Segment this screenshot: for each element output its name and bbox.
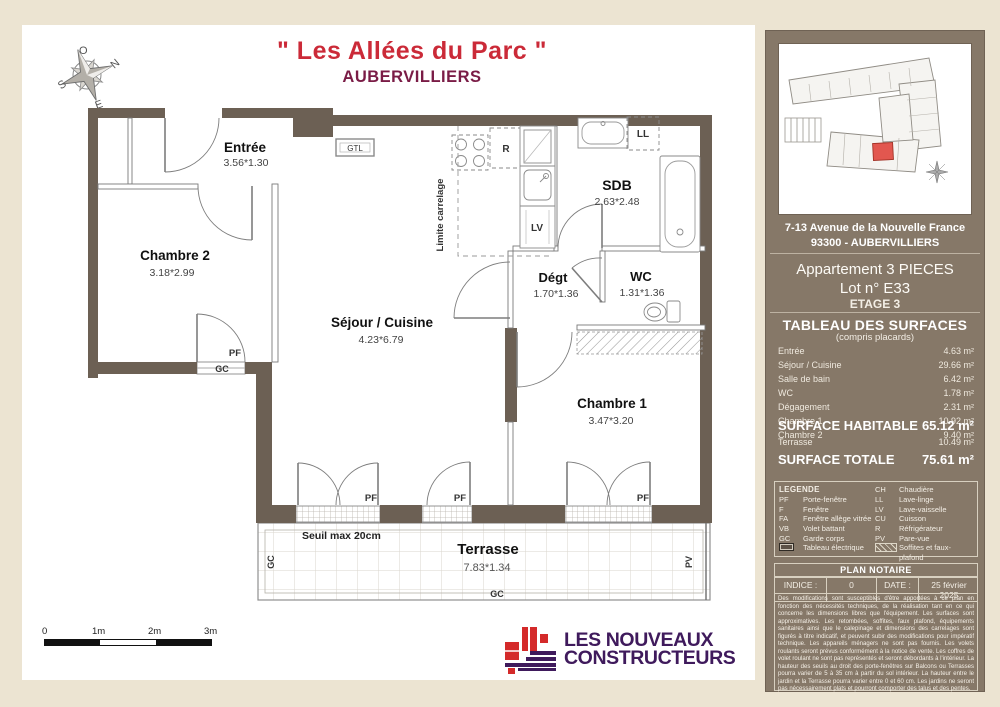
room-wc: WC xyxy=(630,269,652,284)
dishwasher-label: LV xyxy=(531,223,543,234)
pf-label-1: PF xyxy=(365,493,377,504)
room-chambre2-dims: 3.18*2.99 xyxy=(150,267,195,279)
gtl-label: GTL xyxy=(347,144,363,153)
room-wc-dims: 1.31*1.36 xyxy=(620,287,665,299)
scale-0: 0 xyxy=(42,626,47,637)
room-sdb-dims: 2.63*2.48 xyxy=(595,196,640,208)
surface-terrasse-row: Terrasse10.49 m² xyxy=(778,437,974,447)
room-terrasse-dims: 7.83*1.34 xyxy=(463,562,510,574)
room-chambre1-dims: 3.47*3.20 xyxy=(589,415,634,427)
scale-3m: 3m xyxy=(204,626,217,637)
room-degt-dims: 1.70*1.36 xyxy=(534,288,579,300)
pf-label-2: PF xyxy=(454,493,466,504)
logo-line2: CONSTRUCTEURS xyxy=(564,650,735,668)
room-terrasse: Terrasse xyxy=(457,541,518,558)
washbasin-icon xyxy=(578,118,628,148)
fridge-label: R xyxy=(502,144,510,155)
siteplan-parking xyxy=(785,118,821,142)
address: 7-13 Avenue de la Nouvelle France 93300 … xyxy=(766,221,984,251)
surface-row: Salle de bain6.42 m² xyxy=(778,374,974,386)
site-plan xyxy=(778,43,972,215)
seuil-label: Seuil max 20cm xyxy=(302,530,381,542)
surface-row: Séjour / Cuisine29.66 m² xyxy=(778,360,974,372)
plan-notaire-heading: PLAN NOTAIRE xyxy=(774,563,978,577)
highlighted-unit xyxy=(873,142,894,160)
floorplan-page: { "title": { "project": "\" Les Allées d… xyxy=(0,0,1000,707)
builder-logo-icon xyxy=(500,625,558,675)
gc-label-chambre2: GC xyxy=(215,364,229,374)
laundry-label: LL xyxy=(637,129,649,140)
info-panel: 7-13 Avenue de la Nouvelle France 93300 … xyxy=(765,30,985,692)
surface-habitable-row: SURFACE HABITABLE65.12 m² xyxy=(778,418,974,433)
address-line2: 93300 - AUBERVILLIERS xyxy=(766,236,984,251)
siteplan-compass-icon xyxy=(926,161,948,183)
room-chambre2: Chambre 2 xyxy=(140,248,210,263)
address-line1: 7-13 Avenue de la Nouvelle France xyxy=(766,221,984,236)
surface-row: Entrée4.63 m² xyxy=(778,346,974,358)
room-sdb: SDB xyxy=(602,177,632,193)
surfaces-heading: TABLEAU DES SURFACES xyxy=(766,317,984,333)
soffit-hatch xyxy=(577,332,702,354)
room-chambre1: Chambre 1 xyxy=(577,396,647,411)
room-sejour-dims: 4.23*6.79 xyxy=(359,334,404,346)
room-entree: Entrée xyxy=(224,140,267,155)
scale-1m: 1m xyxy=(92,626,105,637)
floor-plan-drawing: Entrée 3.56*1.30 Chambre 2 3.18*2.99 Séj… xyxy=(22,25,755,680)
gc-label-terrace-bottom: GC xyxy=(490,589,504,599)
soffit-legend-icon xyxy=(875,543,897,552)
gc-label-terrace-left: GC xyxy=(266,555,276,569)
surface-totale-row: SURFACE TOTALE75.61 m² xyxy=(778,452,974,467)
pf-label-3: PF xyxy=(637,493,649,504)
legend-box: LEGENDE CHChaudière PFPorte-fenêtre LLLa… xyxy=(774,481,978,557)
pf-label-4: PF xyxy=(229,348,241,359)
room-sejour: Séjour / Cuisine xyxy=(331,315,434,330)
builder-logo: LES NOUVEAUX CONSTRUCTEURS xyxy=(500,622,755,678)
limite-carrelage-label: Limite carrelage xyxy=(435,179,446,252)
gtl-legend-icon xyxy=(779,543,794,551)
scale-bar: 0 1m 2m 3m xyxy=(42,626,222,652)
legend-heading: LEGENDE xyxy=(779,485,875,495)
surfaces-subheading: (compris placards) xyxy=(766,332,984,343)
room-entree-dims: 3.56*1.30 xyxy=(224,157,269,169)
apartment-lot: Lot n° E33 xyxy=(766,280,984,299)
scale-2m: 2m xyxy=(148,626,161,637)
apartment-info: Appartement 3 PIECES Lot n° E33 xyxy=(766,261,984,299)
surface-row: Dégagement2.31 m² xyxy=(778,402,974,414)
room-degt: Dégt xyxy=(539,270,569,285)
floor-label: ETAGE 3 xyxy=(766,297,984,311)
door-swings xyxy=(165,118,650,505)
pv-label: PV xyxy=(684,556,694,568)
disclaimer-text: Des modifications sont susceptibles d'êt… xyxy=(774,593,978,691)
apartment-type: Appartement 3 PIECES xyxy=(766,261,984,280)
bathtub-icon xyxy=(660,156,700,252)
plan-sheet: " Les Allées du Parc " AUBERVILLIERS O N… xyxy=(22,25,755,680)
surface-row: WC1.78 m² xyxy=(778,388,974,400)
